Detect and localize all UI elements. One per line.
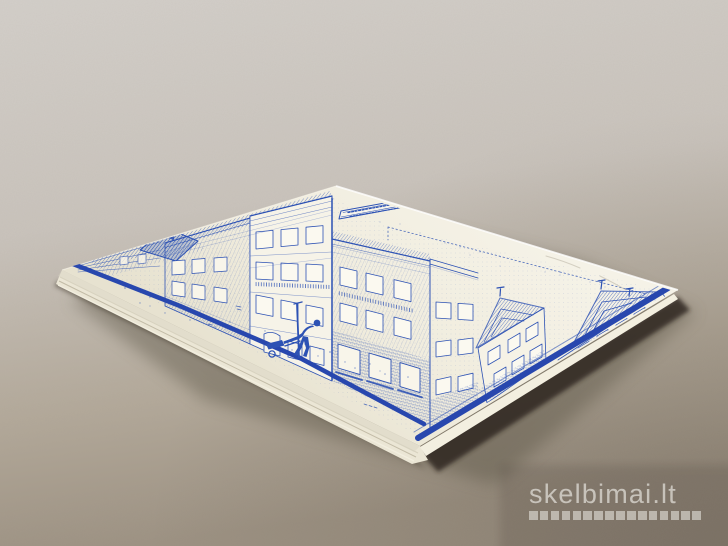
watermark-backing (500, 465, 728, 546)
photo-frame: skelbimai.lt (0, 0, 728, 546)
person-head (314, 320, 321, 327)
photo-scene (0, 0, 728, 546)
facade-windows-row (256, 226, 323, 327)
